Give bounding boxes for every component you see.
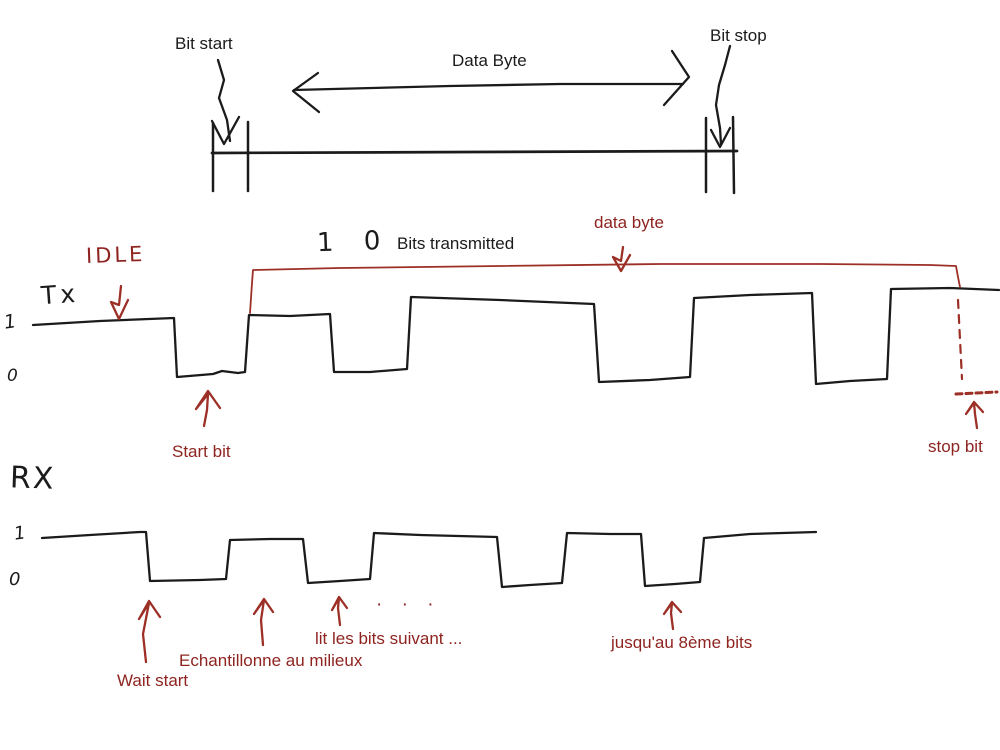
data-byte-bracket: [250, 264, 960, 313]
tx-level-low-label: 0: [7, 366, 18, 386]
timeline-tick-right-outer: [733, 117, 734, 193]
timeline-line: [212, 151, 737, 153]
rx-waveform: [42, 532, 816, 587]
idle-arrow-icon: [111, 286, 128, 319]
data-byte-span-arrowhead-left-icon: [293, 73, 319, 112]
read-next-bits-label: lit les bits suivant ...: [315, 629, 462, 649]
sample-middle-label: Echantillonne au milieux: [179, 651, 362, 671]
wait-start-arrow-icon: [139, 601, 160, 662]
rx-level-low-label: 0: [9, 569, 20, 590]
stop-bit-arrow-icon: [966, 402, 983, 428]
until-eighth-arrow-icon: [664, 602, 681, 629]
tx-waveform: [33, 288, 999, 384]
bits-transmitted-label: Bits transmitted: [397, 234, 514, 254]
data-byte-span-arrow-line: [294, 84, 683, 90]
data-byte-span-arrowhead-right-icon: [664, 51, 689, 105]
start-bit-label: Start bit: [172, 442, 231, 462]
bit-start-arrowhead-icon: [212, 117, 239, 144]
tx-label: Tx: [40, 279, 80, 311]
until-eighth-bit-label: jusqu'au 8ème bits: [611, 633, 752, 653]
stop-bit-dashed-horizontal: [956, 392, 997, 394]
start-bit-arrow-icon: [196, 391, 220, 426]
data-byte-span-label: Data Byte: [452, 51, 527, 71]
sketch-canvas: [0, 0, 1000, 750]
data-byte-arrow-icon: [613, 247, 630, 271]
ellipsis-dots: · · ·: [376, 594, 441, 616]
sample-middle-arrow-icon: [254, 599, 273, 645]
stop-bit-dashed-vertical: [958, 300, 962, 379]
bit-stop-label: Bit stop: [710, 26, 767, 46]
bits-count-handwritten: 1 0: [316, 226, 391, 259]
wait-start-label: Wait start: [117, 671, 188, 691]
bit-start-label: Bit start: [175, 34, 233, 54]
stop-bit-label: stop bit: [928, 437, 983, 457]
sketch-page: Bit start Data Byte Bit stop IDLE Tx 1 0…: [0, 0, 1000, 750]
bit-start-arrow-icon: [218, 60, 230, 141]
idle-label: IDLE: [86, 242, 146, 268]
read-next-arrow-icon: [332, 597, 347, 625]
bit-stop-arrow-icon: [716, 46, 730, 144]
rx-label: RX: [9, 460, 56, 497]
data-byte-annotation-label: data byte: [594, 213, 664, 233]
